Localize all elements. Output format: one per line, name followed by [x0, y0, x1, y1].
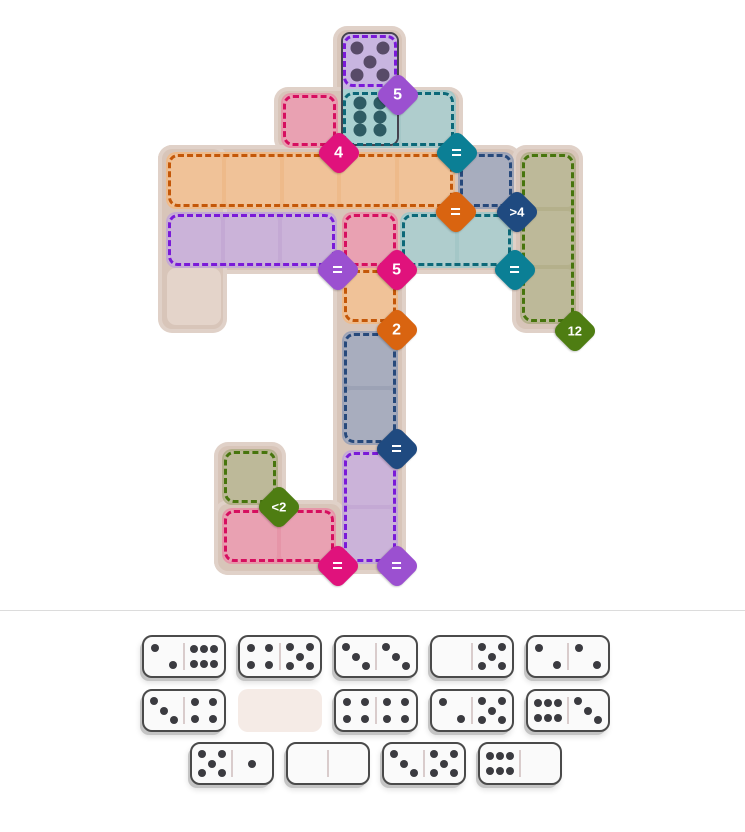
pip [200, 660, 208, 668]
tray-domino-right-half [232, 744, 272, 783]
badge-label: 5 [393, 262, 402, 278]
pip [488, 653, 496, 661]
tray-domino-right-half [184, 691, 224, 730]
region-cell [168, 154, 222, 207]
pip [286, 643, 294, 651]
pip [392, 653, 400, 661]
pip [401, 698, 409, 706]
pip [209, 715, 217, 723]
pip [478, 662, 486, 670]
pip [169, 661, 177, 669]
pip [373, 110, 386, 123]
domino-tray [0, 611, 745, 832]
pip [342, 643, 350, 651]
pip [306, 643, 314, 651]
pip [593, 661, 601, 669]
tray-domino-left-half [192, 744, 232, 783]
pip [354, 96, 367, 109]
pip [200, 645, 208, 653]
region-cell [283, 95, 336, 146]
pip [478, 697, 486, 705]
pip [544, 714, 552, 722]
pip [190, 660, 198, 668]
badge-label: = [333, 261, 344, 279]
pip [544, 699, 552, 707]
tray-domino-3-3[interactable] [334, 635, 418, 678]
pip [361, 698, 369, 706]
pip [343, 715, 351, 723]
tray-domino-right-half [568, 691, 608, 730]
pip [498, 662, 506, 670]
tray-domino-left-half [336, 691, 376, 730]
badge-label: 4 [335, 145, 344, 161]
pip [554, 699, 562, 707]
pip [354, 124, 367, 137]
badge-label: = [333, 557, 344, 575]
badge-label: 2 [393, 322, 402, 338]
tray-domino-left-half [288, 744, 328, 783]
region-cell [168, 214, 221, 266]
pip [150, 697, 158, 705]
pip [352, 653, 360, 661]
pip [553, 661, 561, 669]
pip [506, 767, 514, 775]
tray-domino-right-half [472, 637, 512, 676]
tray-domino-left-half [432, 691, 472, 730]
pip [265, 661, 273, 669]
pip [478, 643, 486, 651]
pip [376, 42, 389, 55]
pip [400, 760, 408, 768]
pip [574, 697, 582, 705]
pip [191, 698, 199, 706]
pip [354, 110, 367, 123]
tray-domino-left-half [336, 637, 376, 676]
pip [247, 661, 255, 669]
tray-domino-3-4[interactable] [142, 689, 226, 732]
tray-domino-right-half [472, 691, 512, 730]
pip [351, 68, 364, 81]
pip [210, 660, 218, 668]
pip [535, 644, 543, 652]
pip [373, 124, 386, 137]
tray-domino-left-half [144, 637, 184, 676]
tray-domino-5-1[interactable] [190, 742, 274, 785]
tray-domino-0-5[interactable] [430, 635, 514, 678]
pip [430, 750, 438, 758]
pip [151, 644, 159, 652]
pip [265, 644, 273, 652]
pip [376, 68, 389, 81]
tray-domino-left-half [480, 744, 520, 783]
pip [383, 698, 391, 706]
badge-label: = [451, 203, 462, 221]
pip [554, 714, 562, 722]
pip [190, 645, 198, 653]
pip [364, 55, 377, 68]
pip [160, 707, 168, 715]
pip [594, 716, 602, 724]
pip [402, 662, 410, 670]
tray-domino-2-5[interactable] [430, 689, 514, 732]
pip [351, 42, 364, 55]
tray-domino-right-half [376, 691, 416, 730]
tray-domino-right-half [520, 744, 560, 783]
tray-domino-left-half [240, 637, 280, 676]
region-cell [522, 154, 574, 207]
pip [575, 644, 583, 652]
pip [534, 699, 542, 707]
pip [286, 662, 294, 670]
tray-domino-right-half [424, 744, 464, 783]
tray-domino-right-half [184, 637, 224, 676]
tray-domino-4-4[interactable] [334, 689, 418, 732]
pip [362, 662, 370, 670]
tray-domino-right-half [280, 637, 320, 676]
pip [306, 662, 314, 670]
badge-label: 12 [568, 325, 582, 338]
badge-label: <2 [272, 500, 287, 513]
pip [296, 653, 304, 661]
pip [382, 643, 390, 651]
tray-domino-left-half [432, 637, 472, 676]
tray-domino-left-half [144, 691, 184, 730]
tray-domino-6-0[interactable] [478, 742, 562, 785]
pip [457, 715, 465, 723]
pip [170, 716, 178, 724]
badge-label: = [392, 557, 403, 575]
pip [218, 769, 226, 777]
region-cell [225, 214, 278, 266]
tray-domino-2-6[interactable] [142, 635, 226, 678]
pip [450, 750, 458, 758]
pip [247, 644, 255, 652]
tray-domino-0-0[interactable] [286, 742, 370, 785]
pip [496, 767, 504, 775]
tray-domino-right-half [376, 637, 416, 676]
tray-domino-right-half [568, 637, 608, 676]
pip [248, 760, 256, 768]
pip [498, 697, 506, 705]
tray-domino-left-half [528, 637, 568, 676]
pip [488, 707, 496, 715]
pip [498, 643, 506, 651]
tray-empty-slot [238, 689, 322, 732]
pip [191, 715, 199, 723]
badge-label: = [392, 440, 403, 458]
badge-label: = [452, 144, 463, 162]
badge-label: >4 [510, 205, 525, 218]
pip [486, 752, 494, 760]
pip [584, 707, 592, 715]
pip [534, 714, 542, 722]
pip [410, 769, 418, 777]
pip [218, 750, 226, 758]
pip [440, 760, 448, 768]
tray-domino-6-3[interactable] [526, 689, 610, 732]
badge-label: 5 [394, 87, 403, 103]
pip [450, 769, 458, 777]
badge-label: = [510, 261, 521, 279]
puzzle-app: 5=4=>4=5=122==<2= [0, 0, 745, 832]
pip [198, 750, 206, 758]
tray-domino-right-half [328, 744, 368, 783]
region-cell [226, 154, 280, 207]
pip [390, 750, 398, 758]
pip [506, 752, 514, 760]
pip [343, 698, 351, 706]
pip [198, 769, 206, 777]
pip [209, 698, 217, 706]
pip [486, 767, 494, 775]
pip [498, 716, 506, 724]
pip [401, 715, 409, 723]
tray-domino-4-5[interactable] [238, 635, 322, 678]
pip [496, 752, 504, 760]
tray-separator [0, 610, 745, 611]
pip [210, 645, 218, 653]
tray-domino-2-2[interactable] [526, 635, 610, 678]
tray-domino-left-half [384, 744, 424, 783]
pip [361, 715, 369, 723]
pip [478, 716, 486, 724]
pip [439, 698, 447, 706]
empty-board-cell[interactable] [167, 268, 221, 325]
tray-domino-left-half [528, 691, 568, 730]
pip [430, 769, 438, 777]
game-board: 5=4=>4=5=122==<2= [0, 0, 745, 610]
pip [383, 715, 391, 723]
pip [208, 760, 216, 768]
tray-domino-3-5[interactable] [382, 742, 466, 785]
